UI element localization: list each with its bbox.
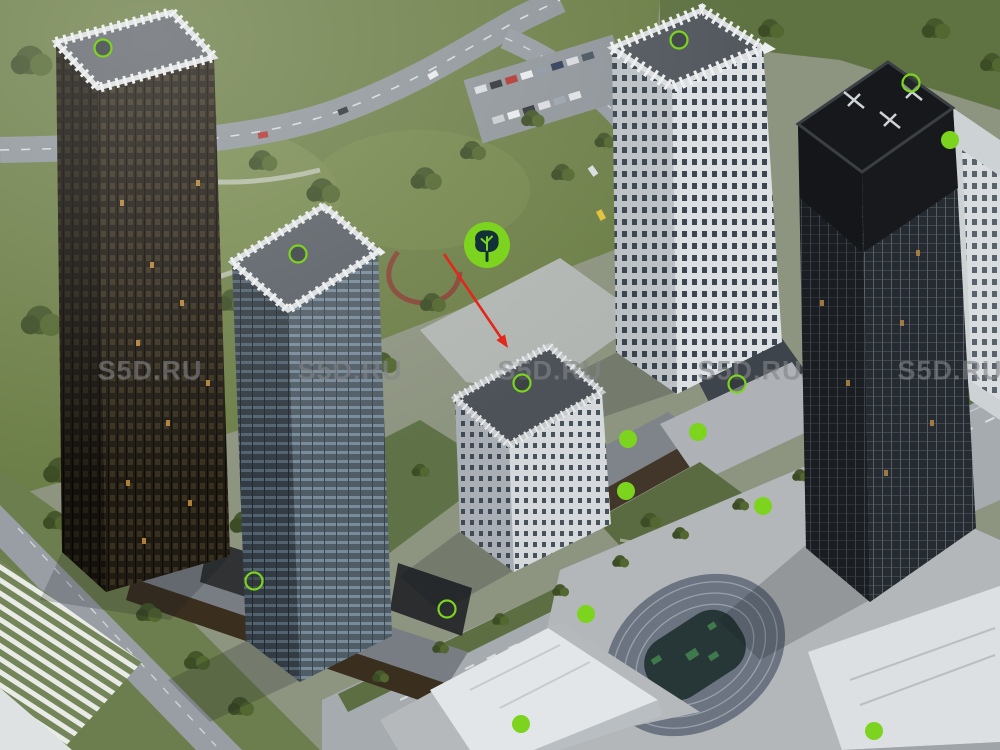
poi-dot[interactable] (689, 423, 707, 441)
annotation-layer (0, 0, 1000, 750)
poi-dot[interactable] (941, 131, 959, 149)
screenshot-stage: S5D.RUS5D.RUS5D.RUS5D.RUS5D.RU (0, 0, 1000, 750)
pointer-arrow (444, 254, 508, 348)
poi-ring[interactable] (290, 246, 307, 263)
poi-ring[interactable] (729, 376, 746, 393)
poi-ring[interactable] (671, 32, 688, 49)
poi-ring[interactable] (439, 601, 456, 618)
poi-dot[interactable] (577, 605, 595, 623)
poi-dot[interactable] (512, 715, 530, 733)
poi-dot[interactable] (619, 430, 637, 448)
poi-dot[interactable] (754, 497, 772, 515)
tree-marker[interactable] (464, 222, 510, 268)
poi-dot[interactable] (617, 482, 635, 500)
poi-ring[interactable] (246, 573, 263, 590)
poi-ring[interactable] (903, 75, 920, 92)
poi-dot[interactable] (865, 722, 883, 740)
poi-ring[interactable] (514, 375, 531, 392)
map-markers (95, 32, 960, 741)
poi-ring[interactable] (95, 40, 112, 57)
